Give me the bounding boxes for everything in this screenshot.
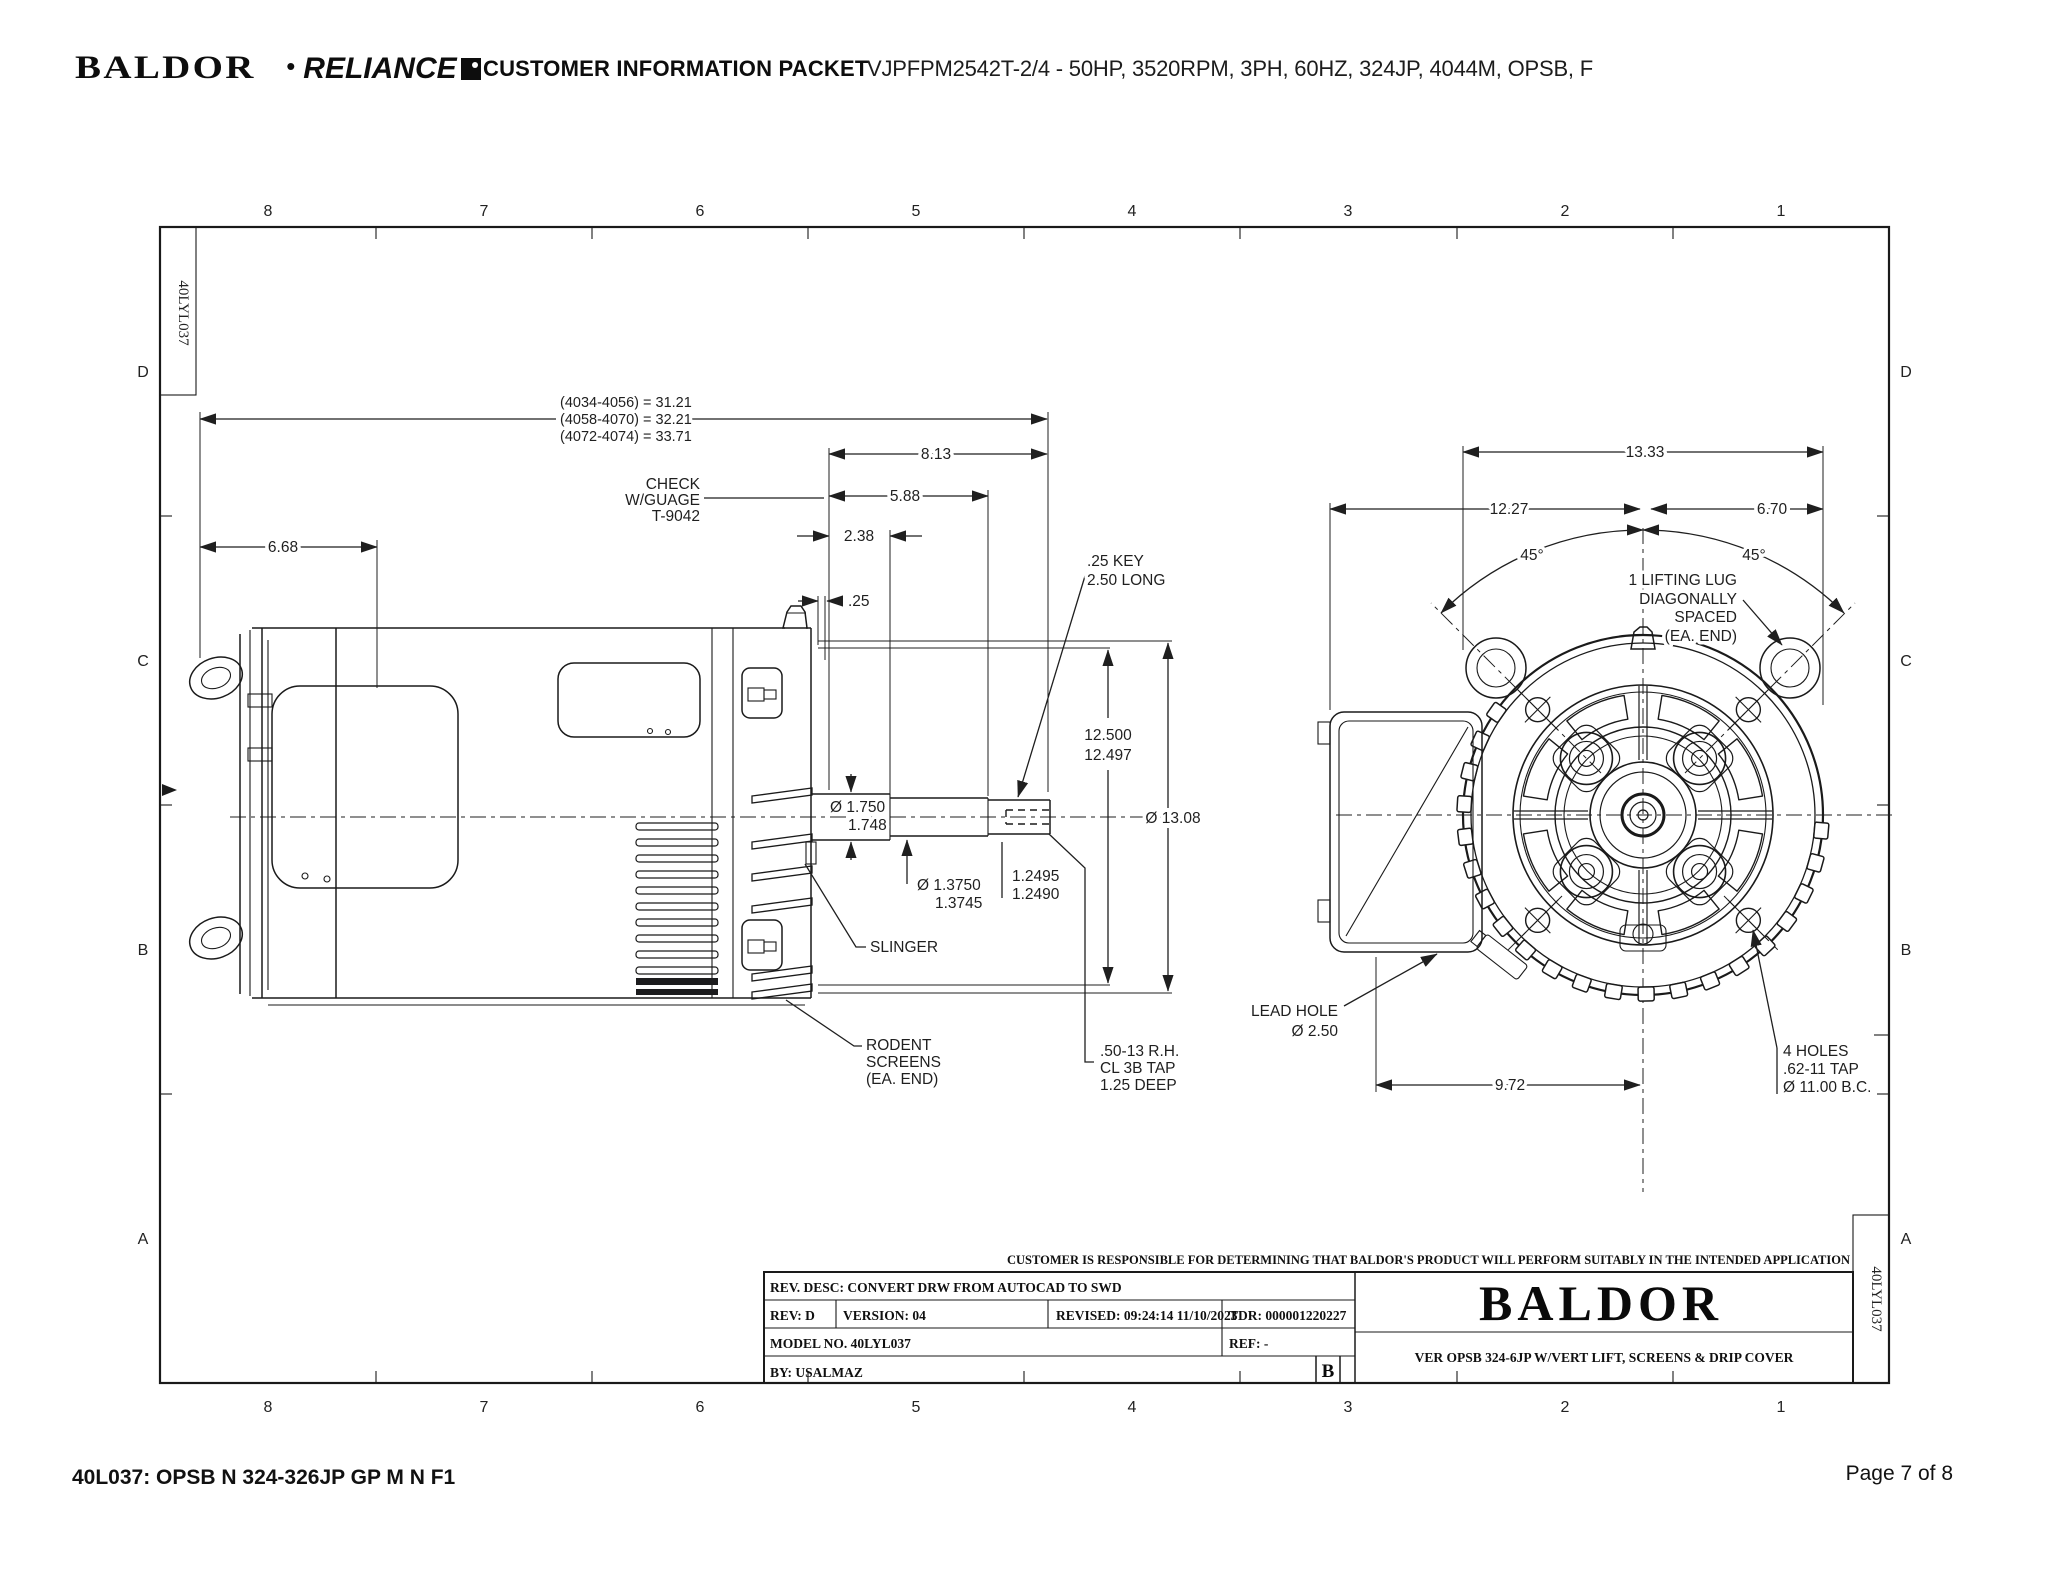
- revised-field: REVISED: 09:24:14 11/10/2023: [1056, 1308, 1238, 1323]
- rodent-note-2: SCREENS: [866, 1054, 941, 1071]
- disclaimer-text: CUSTOMER IS RESPONSIBLE FOR DETERMINING …: [1007, 1253, 1850, 1267]
- drawing-description: VER OPSB 324-6JP W/VERT LIFT, SCREENS & …: [1415, 1350, 1794, 1365]
- dim-8-13: 8.13: [921, 446, 951, 463]
- dim-dia-1-3750: Ø 1.3750: [917, 877, 981, 894]
- cooling-fin: [636, 967, 718, 974]
- rim-tooth: [1572, 974, 1592, 993]
- rim-tooth: [1475, 889, 1495, 910]
- dim-0-25: .25: [848, 593, 870, 610]
- cip-document-page: BALDOR•RELIANCE CUSTOMER INFORMATION PAC…: [0, 0, 2048, 1582]
- cooling-fin: [636, 871, 718, 878]
- bolt-boss: [1569, 855, 1603, 889]
- bolt-boss: [1683, 855, 1717, 889]
- vent-slot: [1567, 890, 1628, 934]
- dim-12-27: 12.27: [1490, 501, 1529, 518]
- cooling-fin: [636, 935, 718, 942]
- overall-length-dim-2: (4058-4070) = 32.21: [560, 412, 692, 428]
- tap-note-1: .50-13 R.H.: [1100, 1043, 1179, 1060]
- dim-12-500: 12.500: [1084, 727, 1132, 744]
- rim-tooth: [1814, 822, 1829, 839]
- tdr-field: TDR: 000001220227: [1229, 1308, 1347, 1323]
- sheet-border: 40LYL037 40LYL037: [160, 227, 1889, 1383]
- angle-45-left: 45°: [1520, 547, 1543, 564]
- lead-hole-note-1: LEAD HOLE: [1251, 1003, 1338, 1020]
- rodent-note-1: RODENT: [866, 1037, 932, 1054]
- zone-col-label: 7: [480, 203, 489, 220]
- bolt-boss: [1578, 864, 1594, 880]
- zone-col-label: 3: [1344, 203, 1353, 220]
- rim-tooth: [1794, 883, 1814, 904]
- dim-dia-1-750: Ø 1.750: [830, 799, 886, 816]
- zone-col-label: 2: [1561, 203, 1570, 220]
- rim-tooth: [1457, 828, 1473, 846]
- screen-slat: [752, 898, 812, 913]
- dim-13-33: 13.33: [1626, 444, 1665, 461]
- rim-tooth: [1638, 987, 1654, 1001]
- title-block: CUSTOMER IS RESPONSIBLE FOR DETERMINING …: [764, 1253, 1853, 1383]
- key-note-2: 2.50 LONG: [1087, 572, 1165, 589]
- zone-row-label: B: [1901, 942, 1912, 959]
- dim-dia-13-08: Ø 13.08: [1145, 810, 1200, 827]
- zone-col-label: 3: [1344, 1399, 1353, 1416]
- rim-tooth: [1729, 956, 1750, 976]
- cooling-fin: [636, 951, 718, 958]
- border-center-arrow-left: [162, 784, 177, 796]
- zone-col-label: 5: [912, 1399, 921, 1416]
- screen-slat: [752, 984, 812, 999]
- zone-col-label: 6: [696, 1399, 705, 1416]
- footer-drawing-code: 40L037: OPSB N 324-326JP GP M N F1: [72, 1466, 455, 1490]
- zone-col-label: 8: [264, 1399, 273, 1416]
- version-field: VERSION: 04: [843, 1308, 926, 1323]
- lug-note-1: 1 LIFTING LUG: [1628, 572, 1737, 589]
- motor-side-view: [184, 596, 1175, 1005]
- baldor-title-block-logo: BALDOR: [1479, 1275, 1723, 1331]
- rim-tooth: [1669, 982, 1687, 999]
- by-field: BY: USALMAZ: [770, 1365, 863, 1380]
- screen-slat: [752, 966, 812, 981]
- key-note-1: .25 KEY: [1087, 553, 1144, 570]
- holes-note-1: 4 HOLES: [1783, 1043, 1848, 1060]
- vent-slot: [1718, 739, 1762, 800]
- cooling-fin: [636, 919, 718, 926]
- bolt-boss: [1674, 846, 1726, 898]
- zone-col-label: 8: [264, 203, 273, 220]
- dim-1-2490: 1.2490: [1012, 886, 1060, 903]
- overall-length-dim-3: (4072-4074) = 33.71: [560, 429, 692, 445]
- screen-slat: [752, 788, 812, 803]
- rim-tooth: [1700, 971, 1720, 990]
- bolt-boss: [1560, 846, 1612, 898]
- vent-slot: [1523, 830, 1567, 891]
- tap-note-2: CL 3B TAP: [1100, 1060, 1176, 1077]
- zone-col-label: 1: [1777, 1399, 1786, 1416]
- slinger-label: SLINGER: [870, 939, 938, 956]
- front-view-dimensions: 13.33 12.27 6.70 45° 45° 1 LIFTING LUG D…: [1251, 444, 1871, 1096]
- bolt-boss: [1569, 741, 1603, 775]
- zone-col-label: 4: [1128, 203, 1137, 220]
- bolt-boss: [1692, 750, 1708, 766]
- fin-shadow: [636, 978, 718, 985]
- lifting-lug-left: [1466, 638, 1526, 698]
- dim-2-38: 2.38: [844, 528, 874, 545]
- cooling-fin: [636, 839, 718, 846]
- lug-note-3: SPACED: [1674, 609, 1737, 626]
- vent-slot: [1718, 830, 1762, 891]
- rim-tooth: [1807, 853, 1825, 872]
- rim-tooth: [1463, 859, 1481, 878]
- lifting-lug-right: [1760, 638, 1820, 698]
- dim-6-68: 6.68: [268, 539, 298, 556]
- rim-tooth: [1461, 762, 1478, 781]
- vent-slot: [1658, 890, 1719, 934]
- dim-5-88: 5.88: [890, 488, 920, 505]
- angle-45-right: 45°: [1742, 547, 1765, 564]
- tap-note-3: 1.25 DEEP: [1100, 1077, 1177, 1094]
- screen-slat: [752, 866, 812, 881]
- bolt-boss: [1578, 750, 1594, 766]
- dim-1-2495: 1.2495: [1012, 868, 1059, 885]
- cooling-fin: [636, 887, 718, 894]
- bolt-boss: [1560, 732, 1612, 784]
- zone-row-label: C: [1900, 653, 1912, 670]
- doc-number-vertical-top: 40LYL037: [175, 280, 191, 346]
- zone-row-label: C: [137, 653, 149, 670]
- vent-slot: [1567, 695, 1628, 739]
- overall-length-dim-1: (4034-4056) = 31.21: [560, 395, 692, 411]
- rodent-note-3: (EA. END): [866, 1071, 938, 1088]
- bolt-boss: [1674, 732, 1726, 784]
- dim-6-70: 6.70: [1757, 501, 1788, 518]
- vent-slot: [1523, 739, 1567, 800]
- rim-tooth: [1542, 959, 1563, 979]
- zone-row-label: A: [138, 1231, 149, 1248]
- zone-row-label: A: [1901, 1231, 1912, 1248]
- zone-row-label: D: [137, 364, 149, 381]
- model-no-field: MODEL NO. 40LYL037: [770, 1336, 911, 1351]
- check-gauge-note-2: W/GUAGE: [625, 492, 700, 509]
- zone-col-label: 5: [912, 203, 921, 220]
- zone-col-label: 2: [1561, 1399, 1570, 1416]
- lug-note-2: DIAGONALLY: [1639, 591, 1737, 608]
- lead-hole-note-2: Ø 2.50: [1291, 1023, 1338, 1040]
- rev-desc-field: REV. DESC: CONVERT DRW FROM AUTOCAD TO S…: [770, 1280, 1122, 1295]
- rev-field: REV: D: [770, 1308, 815, 1323]
- dim-9-72: 9.72: [1495, 1077, 1525, 1094]
- zone-col-label: 4: [1128, 1399, 1137, 1416]
- zone-col-label: 1: [1777, 203, 1786, 220]
- cooling-fin: [636, 855, 718, 862]
- dim-dia-1-3745: 1.3745: [935, 895, 982, 912]
- zone-col-label: 7: [480, 1399, 489, 1416]
- bolt-boss: [1683, 741, 1717, 775]
- footer-page-number: Page 7 of 8: [1846, 1462, 1953, 1486]
- engineering-drawing: 40LYL037 40LYL037 8 7 6 5 4 3 2 1 8 7 6 …: [0, 0, 2048, 1582]
- screen-slat: [752, 834, 812, 849]
- check-gauge-note-3: T-9042: [652, 508, 700, 525]
- bolt-boss: [1692, 864, 1708, 880]
- rim-tooth: [1604, 983, 1622, 999]
- sheet-size-letter: B: [1322, 1361, 1335, 1382]
- ref-field: REF: -: [1229, 1336, 1268, 1351]
- zone-col-label: 6: [696, 203, 705, 220]
- holes-note-2: .62-11 TAP: [1783, 1061, 1859, 1078]
- fin-shadow: [636, 989, 718, 995]
- rim-tooth: [1457, 796, 1472, 813]
- doc-number-vertical-bottom: 40LYL037: [1868, 1266, 1884, 1332]
- dim-12-497: 12.497: [1084, 747, 1131, 764]
- cooling-fin: [636, 903, 718, 910]
- check-gauge-note-1: CHECK: [646, 476, 701, 493]
- zone-row-label: D: [1900, 364, 1912, 381]
- vent-slot: [1658, 695, 1719, 739]
- holes-note-3: Ø 11.00 B.C.: [1783, 1079, 1871, 1096]
- cooling-fin: [636, 823, 718, 830]
- lug-note-4: (EA. END): [1665, 628, 1737, 645]
- dim-dia-1-748: 1.748: [848, 817, 887, 834]
- zone-row-label: B: [138, 942, 149, 959]
